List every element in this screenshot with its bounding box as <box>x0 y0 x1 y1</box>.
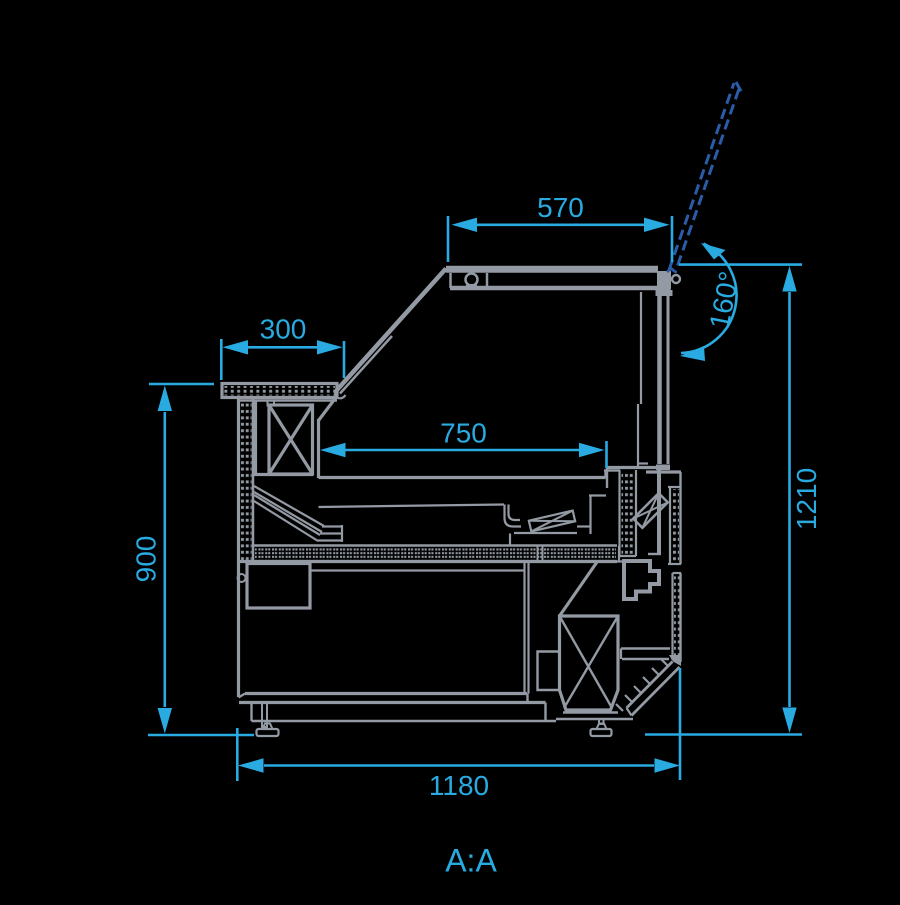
svg-text:750: 750 <box>440 418 487 449</box>
svg-text:570: 570 <box>537 192 584 223</box>
svg-text:A:A: A:A <box>445 843 497 879</box>
svg-text:1180: 1180 <box>429 770 489 801</box>
svg-text:1210: 1210 <box>791 468 822 530</box>
svg-text:300: 300 <box>260 314 307 345</box>
svg-text:900: 900 <box>131 536 162 583</box>
